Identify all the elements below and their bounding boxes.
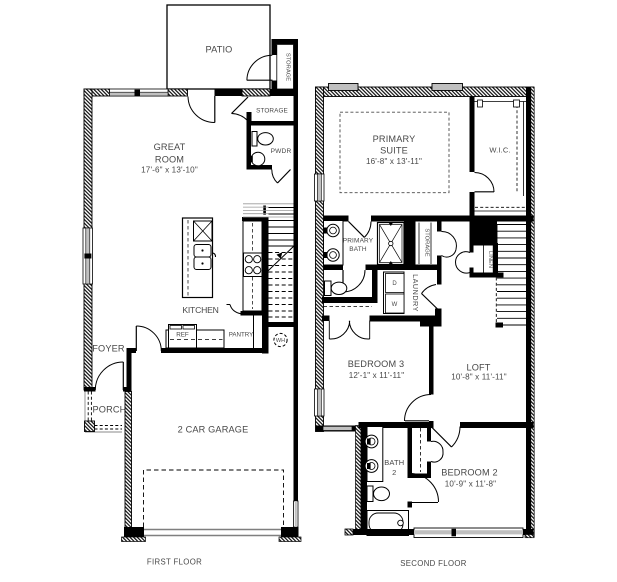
svg-text:FIRST FLOOR: FIRST FLOOR: [147, 558, 202, 567]
svg-text:PORCH: PORCH: [93, 405, 127, 415]
svg-text:LOFT: LOFT: [466, 363, 490, 373]
svg-text:BEDROOM 2: BEDROOM 2: [441, 468, 497, 478]
svg-text:STORAGE: STORAGE: [423, 228, 429, 256]
svg-text:REF: REF: [176, 332, 189, 339]
svg-text:PRIMARY: PRIMARY: [343, 238, 374, 245]
svg-text:SECOND FLOOR: SECOND FLOOR: [400, 559, 467, 568]
svg-text:2 CAR GARAGE: 2 CAR GARAGE: [178, 425, 249, 435]
svg-text:BATH: BATH: [349, 246, 367, 253]
svg-text:LINEN: LINEN: [487, 251, 493, 268]
svg-text:10'-8" x 11'-11": 10'-8" x 11'-11": [451, 373, 506, 382]
svg-text:ROOM: ROOM: [155, 155, 184, 165]
svg-text:GREAT: GREAT: [154, 142, 186, 152]
svg-text:12'-1" x 11'-11": 12'-1" x 11'-11": [349, 371, 404, 380]
svg-text:BEDROOM 3: BEDROOM 3: [348, 359, 404, 369]
svg-text:17'-6" x 13'-10": 17'-6" x 13'-10": [141, 166, 198, 175]
svg-text:W: W: [392, 302, 398, 308]
svg-text:PANTRY: PANTRY: [229, 332, 254, 339]
svg-text:2: 2: [392, 468, 396, 477]
svg-text:WH: WH: [276, 338, 285, 344]
svg-text:W.I.C.: W.I.C.: [489, 146, 510, 155]
svg-text:D: D: [392, 281, 397, 287]
svg-text:LAUNDRY: LAUNDRY: [411, 274, 420, 312]
svg-text:BATH: BATH: [384, 458, 404, 467]
svg-text:PATIO: PATIO: [206, 44, 233, 54]
svg-text:SUITE: SUITE: [380, 146, 408, 156]
svg-text:10'-9" x 11'-8": 10'-9" x 11'-8": [445, 480, 496, 489]
svg-text:STORAGE: STORAGE: [285, 53, 291, 81]
svg-text:FOYER: FOYER: [92, 344, 125, 354]
svg-text:KITCHEN: KITCHEN: [182, 305, 218, 315]
svg-text:STORAGE: STORAGE: [256, 108, 288, 115]
svg-text:PRIMARY: PRIMARY: [373, 134, 416, 144]
svg-text:16'-8" x 13'-11": 16'-8" x 13'-11": [366, 157, 422, 166]
svg-text:PWDR: PWDR: [271, 148, 292, 155]
